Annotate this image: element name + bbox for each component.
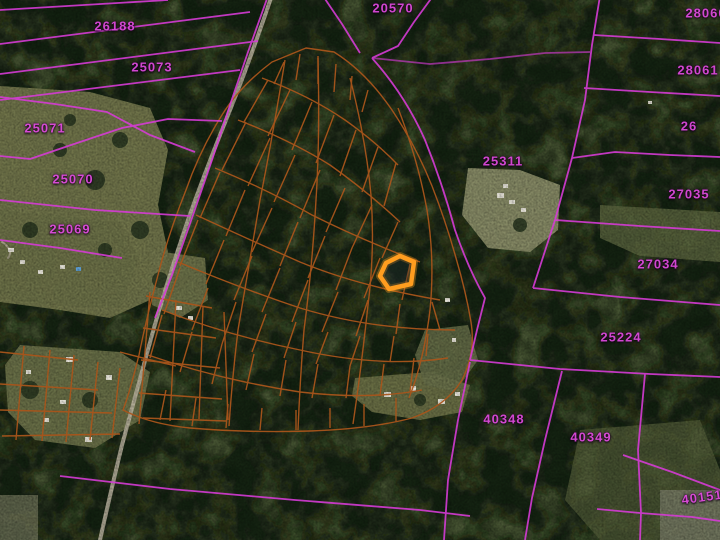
map-viewport[interactable]: 20570 26188 28060 25073 28061 25071 26 2… bbox=[0, 0, 720, 540]
aerial-imagery-overlay bbox=[0, 0, 720, 540]
image-grain bbox=[0, 0, 720, 540]
selected-lot-highlight[interactable] bbox=[380, 256, 414, 289]
